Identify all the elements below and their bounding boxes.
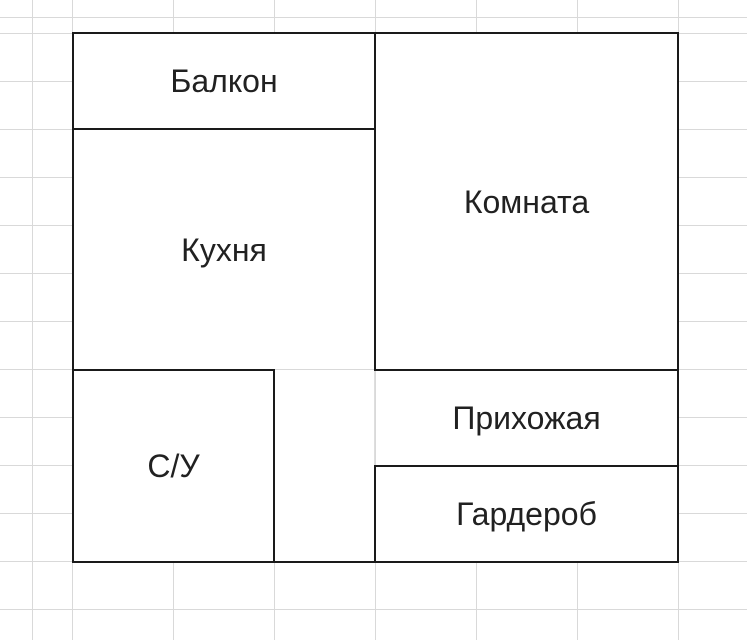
wall-outer-left <box>72 32 74 563</box>
room-label-wardrobe: Гардероб <box>456 498 597 530</box>
room-label-bathroom: С/У <box>147 450 199 482</box>
room-kitchen[interactable]: Кухня <box>74 130 374 369</box>
corridor-gridline-segment <box>374 371 375 465</box>
room-label-hallway: Прихожая <box>452 402 600 434</box>
room-bathroom[interactable]: С/У <box>74 371 273 561</box>
room-hallway[interactable]: Прихожая <box>376 371 677 465</box>
wall-kitchen-room-divider <box>374 32 376 371</box>
spreadsheet-grid: БалконКухняКомнатаС/УПрихожаяГардероб <box>0 0 747 640</box>
wall-hallway-top <box>374 369 679 371</box>
room-wardrobe[interactable]: Гардероб <box>376 467 677 561</box>
room-label-kitchen: Кухня <box>181 234 267 266</box>
room-label-room: Комната <box>464 186 589 218</box>
wall-balcony-bottom <box>72 128 376 130</box>
wall-bathroom-right <box>273 369 275 563</box>
wall-outer-right <box>677 32 679 563</box>
wall-wardrobe-top <box>374 465 679 467</box>
room-room[interactable]: Комната <box>376 34 677 369</box>
room-balcony[interactable]: Балкон <box>74 34 374 128</box>
wall-wardrobe-left <box>374 465 376 563</box>
room-label-balcony: Балкон <box>170 65 277 97</box>
wall-bathroom-top <box>72 369 275 371</box>
room-corridor <box>275 371 374 561</box>
